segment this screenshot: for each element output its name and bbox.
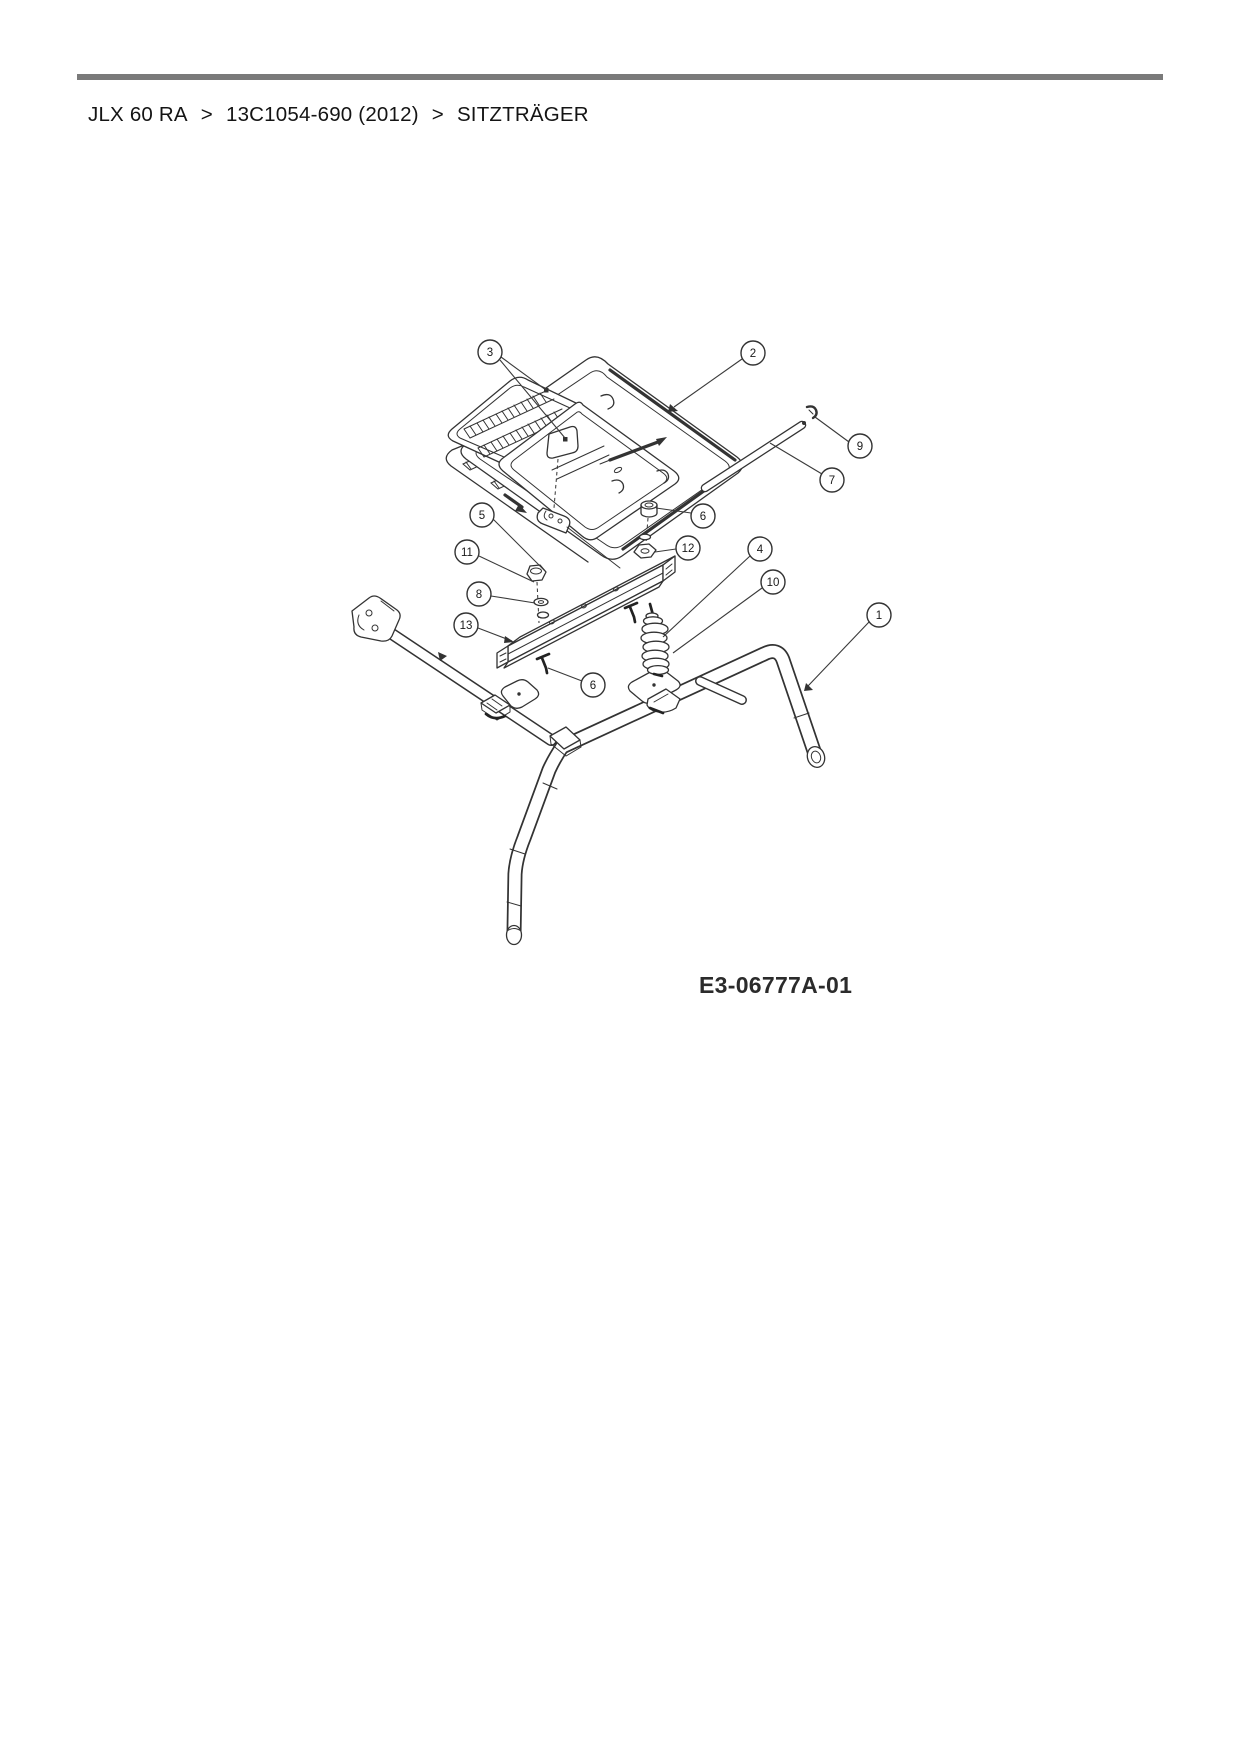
svg-text:8: 8	[476, 589, 482, 601]
callout-11[interactable]: 11	[455, 540, 534, 582]
svg-text:1: 1	[876, 610, 882, 622]
svg-text:6: 6	[590, 680, 596, 692]
diagram-code-label: E3-06777A-01	[699, 972, 852, 999]
parts-catalog-page: JLX 60 RA > 13C1054-690 (2012) > SITZTRÄ…	[0, 0, 1240, 1754]
callout-12[interactable]: 12	[655, 536, 700, 560]
callout-1[interactable]: 1	[804, 603, 891, 691]
compression-spring	[641, 604, 669, 676]
callout-8[interactable]: 8	[467, 582, 535, 606]
callout-7[interactable]: 7	[770, 443, 844, 492]
exploded-parts-diagram: 1 2 3 4 5	[0, 0, 1240, 1754]
callout-6-bottom[interactable]: 6	[548, 668, 605, 697]
svg-text:5: 5	[479, 510, 485, 522]
svg-text:7: 7	[829, 475, 835, 487]
svg-text:2: 2	[750, 348, 756, 360]
callout-13[interactable]: 13	[454, 613, 514, 643]
callout-5[interactable]: 5	[470, 503, 545, 571]
svg-text:4: 4	[757, 544, 764, 556]
svg-text:6: 6	[700, 511, 706, 523]
svg-text:9: 9	[857, 441, 863, 453]
svg-text:11: 11	[461, 547, 473, 559]
callout-2[interactable]: 2	[668, 341, 765, 412]
svg-text:10: 10	[767, 577, 780, 589]
seat-pan	[446, 357, 742, 562]
svg-text:3: 3	[487, 347, 493, 359]
callout-9[interactable]: 9	[815, 417, 872, 458]
svg-text:12: 12	[682, 543, 695, 555]
seat-strap-bracket	[352, 596, 551, 740]
svg-text:13: 13	[460, 620, 473, 632]
